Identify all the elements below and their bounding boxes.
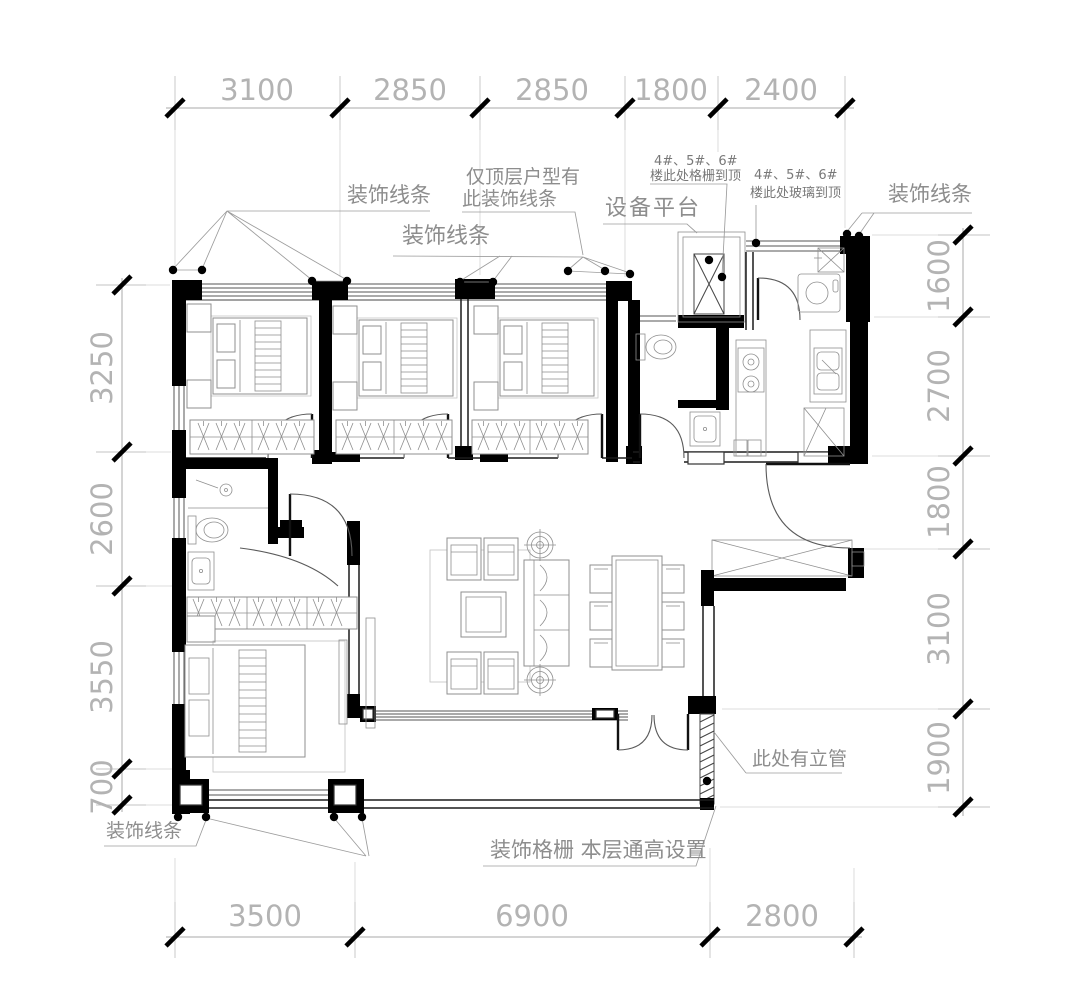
label-deco-top-left: 装饰线条 [347, 183, 431, 207]
label-deco-top-right: 装饰线条 [888, 182, 972, 206]
dim-right-5: 1900 [922, 721, 956, 795]
dimension-left: 3250 2600 3550 700 [85, 276, 185, 815]
dim-right-2: 2700 [922, 349, 956, 423]
dim-left-2: 2600 [85, 482, 119, 556]
dim-left-3: 3550 [85, 640, 119, 714]
dim-left-1: 3250 [85, 331, 119, 405]
dim-top-3: 2850 [515, 73, 589, 107]
label-top-floor-note-1: 仅顶层户型有 [466, 166, 580, 188]
dim-top-2: 2850 [373, 73, 447, 107]
dim-bottom-2: 6900 [495, 899, 569, 933]
dimension-bottom: 3500 6900 2800 [166, 848, 863, 958]
furniture [185, 248, 846, 772]
floor-plan-drawing: 3100 2850 2850 1800 2400 3500 6900 2800 [0, 0, 1080, 1004]
dim-right-4: 3100 [922, 592, 956, 666]
floor-plan-page: 3100 2850 2850 1800 2400 3500 6900 2800 [0, 0, 1080, 1004]
label-deco-top-mid: 装饰线条 [402, 224, 490, 249]
label-glass-note-1: 4#、5#、6# [754, 168, 838, 183]
label-grille-note-2: 楼此处格栅到顶 [650, 168, 741, 184]
dim-left-4: 700 [85, 759, 119, 814]
bed-bedroom2 [333, 306, 457, 410]
dim-bottom-3: 2800 [745, 899, 819, 933]
dim-top-4: 1800 [634, 73, 708, 107]
dim-right-3: 1800 [922, 465, 956, 539]
label-deco-bottom-left: 装饰线条 [106, 820, 182, 842]
dim-top-1: 3100 [220, 73, 294, 107]
dim-right-1: 1600 [922, 239, 956, 313]
dim-bottom-1: 3500 [228, 899, 302, 933]
dim-top-5: 2400 [744, 73, 818, 107]
label-grille-note-1: 4#、5#、6# [654, 154, 738, 169]
bed-bedroom3 [474, 306, 598, 410]
label-riser-note: 此处有立管 [752, 748, 847, 770]
label-equipment-platform: 设备平台 [605, 196, 701, 221]
label-glass-note-2: 楼此处玻璃到顶 [750, 186, 841, 201]
label-bottom-grille-note: 装饰格栅 本层通高设置 [490, 838, 707, 862]
label-top-floor-note-2: 此装饰线条 [462, 188, 557, 210]
bed-bedroom1 [187, 304, 311, 408]
